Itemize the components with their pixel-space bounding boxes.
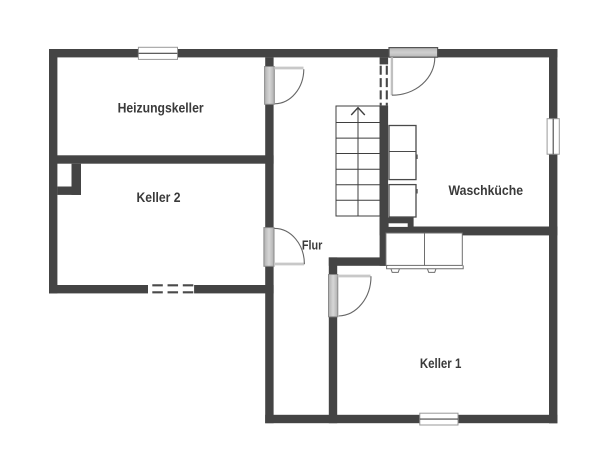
svg-text:Keller 2: Keller 2	[137, 189, 181, 205]
svg-text:Heizungskeller: Heizungskeller	[118, 99, 204, 115]
svg-text:Waschküche: Waschküche	[449, 182, 524, 198]
svg-text:Keller 1: Keller 1	[420, 355, 462, 371]
svg-text:Flur: Flur	[302, 238, 323, 252]
